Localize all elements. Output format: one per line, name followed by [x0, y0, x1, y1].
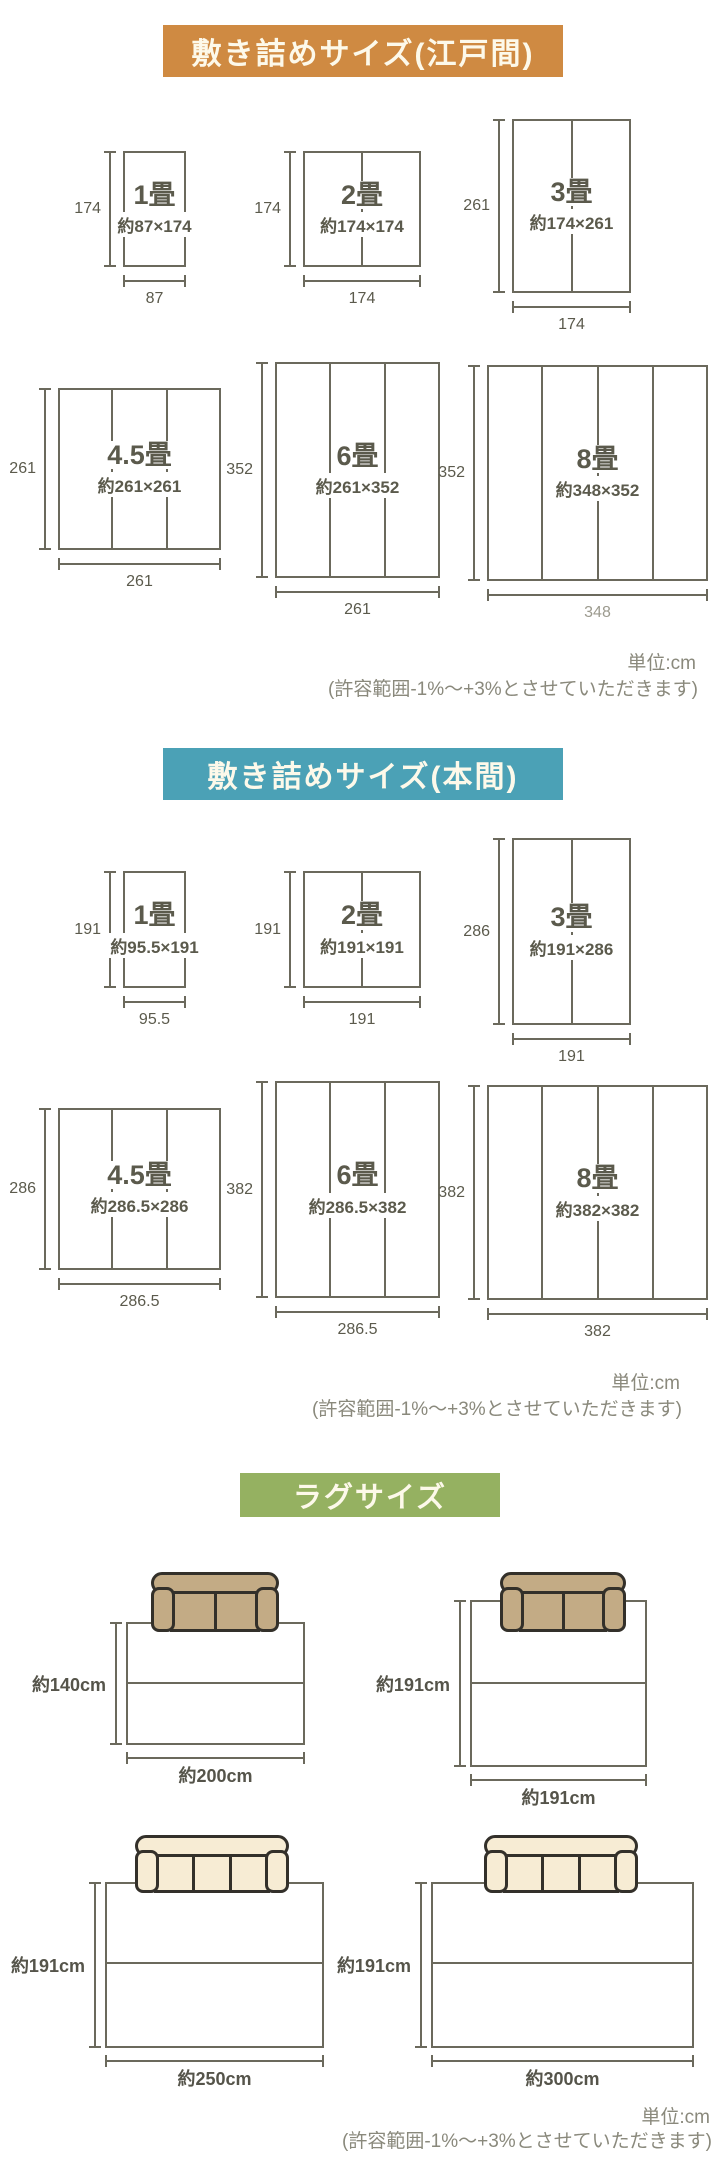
width-dim-label: 174: [349, 290, 376, 308]
height-dim-line: [468, 365, 480, 581]
mat-name: 4.5畳: [102, 1161, 177, 1189]
mat-edoma-4-5jo: 4.5畳 約261×261 261 261: [58, 388, 221, 550]
width-dim-label: 87: [146, 290, 164, 308]
rug-middle-line: [431, 1962, 694, 1964]
width-dim-line: [58, 558, 221, 570]
mat-edoma-8jo: 8畳 約348×352 352 348: [487, 365, 708, 581]
height-dim-label: 約140cm: [32, 1671, 106, 1697]
sofa-seats: [170, 1591, 260, 1632]
mat-honma-4-5jo: 4.5畳 約286.5×286 286 286.5: [58, 1108, 221, 1270]
sofa-icon: [500, 1572, 626, 1632]
mat-edoma-3jo: 3畳 約174×261 261 174: [512, 119, 631, 293]
sofa-icon: [151, 1572, 279, 1632]
height-dim-line: [104, 871, 116, 988]
sofa-armrest-right: [602, 1587, 626, 1632]
height-dim-label: 約191cm: [11, 1952, 85, 1978]
width-dim-label: 約191cm: [521, 1784, 595, 1810]
mat-name: 8畳: [571, 1164, 623, 1192]
width-dim-line: [487, 589, 708, 601]
mat-size: 約95.5×191: [107, 933, 201, 958]
mat-size: 約174×174: [317, 212, 407, 237]
mat-size: 約191×191: [317, 933, 407, 958]
rug-outline: [431, 1882, 694, 2048]
mat-size: 約191×286: [527, 935, 617, 960]
tolerance-note-edoma: (許容範囲-1%〜+3%とさせていただきます): [328, 674, 698, 701]
mat-edoma-1jo: 1畳 約87×174 174 87: [123, 151, 186, 267]
sofa-seats: [503, 1854, 619, 1893]
width-dim-line: [303, 996, 421, 1008]
height-dim-label: 174: [254, 200, 281, 218]
sofa-armrest-right: [614, 1850, 638, 1893]
mat-size: 約87×174: [114, 212, 194, 237]
mat-name: 4.5畳: [102, 441, 177, 469]
width-dim-line: [487, 1308, 708, 1320]
mat-edoma-2jo: 2畳 約174×174 174 174: [303, 151, 421, 267]
sofa-armrest-right: [255, 1587, 279, 1632]
width-dim-line: [123, 275, 186, 287]
rug-outline: [105, 1882, 324, 2048]
section-header-rug: ラグサイズ: [240, 1473, 500, 1517]
mat-honma-3jo: 3畳 約191×286 286 191: [512, 838, 631, 1025]
sofa-seats: [154, 1854, 270, 1893]
height-dim-label: 382: [438, 1184, 465, 1202]
height-dim-line: [89, 1882, 101, 2048]
mat-name: 3畳: [545, 903, 597, 931]
mat-edoma-6jo: 6畳 約261×352 352 261: [275, 362, 440, 578]
mat-name: 6畳: [331, 1161, 383, 1189]
width-dim-label: 348: [584, 604, 611, 622]
height-dim-label: 261: [463, 197, 490, 215]
width-dim-label: 286.5: [337, 1321, 377, 1339]
height-dim-line: [284, 151, 296, 267]
width-dim-line: [275, 586, 440, 598]
height-dim-label: 382: [226, 1181, 253, 1199]
height-dim-line: [104, 151, 116, 267]
mat-size: 約348×352: [553, 476, 643, 501]
mat-name: 8畳: [571, 445, 623, 473]
sofa-icon: [135, 1835, 289, 1893]
width-dim-label: 286.5: [119, 1293, 159, 1311]
width-dim-line: [512, 1033, 631, 1045]
mat-honma-1jo: 1畳 約95.5×191 191 95.5: [123, 871, 186, 988]
width-dim-line: [303, 275, 421, 287]
rug-191x191: 約191cm 約191cm: [470, 1600, 647, 1767]
width-dim-label: 191: [349, 1011, 376, 1029]
width-dim-label: 約300cm: [525, 2065, 599, 2091]
width-dim-label: 261: [344, 601, 371, 619]
mat-honma-2jo: 2畳 約191×191 191 191: [303, 871, 421, 988]
width-dim-line: [275, 1306, 440, 1318]
mat-size: 約286.5×286: [88, 1192, 192, 1217]
height-dim-line: [493, 838, 505, 1025]
mat-name: 3畳: [545, 178, 597, 206]
tolerance-note-honma: (許容範囲-1%〜+3%とさせていただきます): [312, 1394, 682, 1421]
height-dim-label: 286: [463, 923, 490, 941]
height-dim-label: 191: [254, 921, 281, 939]
mat-size: 約261×261: [95, 472, 185, 497]
sofa-armrest-left: [135, 1850, 159, 1893]
sofa-armrest-left: [151, 1587, 175, 1632]
width-dim-label: 174: [558, 316, 585, 334]
unit-label-honma: 単位:cm: [611, 1368, 680, 1395]
height-dim-label: 352: [438, 464, 465, 482]
width-dim-label: 191: [558, 1048, 585, 1066]
height-dim-line: [454, 1600, 466, 1767]
mat-name: 2畳: [336, 901, 388, 929]
width-dim-line: [512, 301, 631, 313]
height-dim-line: [256, 1081, 268, 1298]
height-dim-label: 約191cm: [337, 1952, 411, 1978]
width-dim-line: [58, 1278, 221, 1290]
height-dim-line: [256, 362, 268, 578]
mat-name: 1畳: [128, 181, 180, 209]
height-dim-line: [39, 388, 51, 550]
mat-honma-8jo: 8畳 約382×382 382 382: [487, 1085, 708, 1300]
sofa-armrest-left: [484, 1850, 508, 1893]
height-dim-label: 約191cm: [376, 1671, 450, 1697]
height-dim-line: [284, 871, 296, 988]
height-dim-label: 191: [74, 921, 101, 939]
width-dim-label: 約250cm: [177, 2065, 251, 2091]
section-header-edoma: 敷き詰めサイズ(江戸間): [163, 25, 563, 77]
sofa-icon: [484, 1835, 638, 1893]
size-infographic: 敷き詰めサイズ(江戸間) 1畳 約87×174 174 87 2畳 約174×1…: [0, 0, 720, 2160]
sofa-armrest-right: [265, 1850, 289, 1893]
height-dim-line: [493, 119, 505, 293]
rug-middle-line: [470, 1682, 647, 1684]
mat-honma-6jo: 6畳 約286.5×382 382 286.5: [275, 1081, 440, 1298]
rug-191x250: 約191cm 約250cm: [105, 1882, 324, 2048]
width-dim-label: 261: [126, 573, 153, 591]
height-dim-line: [415, 1882, 427, 2048]
rug-middle-line: [126, 1682, 305, 1684]
width-dim-label: 約200cm: [178, 1762, 252, 1788]
mat-name: 2畳: [336, 181, 388, 209]
rug-middle-line: [105, 1962, 324, 1964]
mat-name: 1畳: [128, 901, 180, 929]
height-dim-label: 286: [9, 1180, 36, 1198]
unit-label-rug: 単位:cm: [641, 2102, 710, 2129]
width-dim-line: [123, 996, 186, 1008]
height-dim-label: 174: [74, 200, 101, 218]
height-dim-label: 261: [9, 460, 36, 478]
sofa-armrest-left: [500, 1587, 524, 1632]
height-dim-line: [110, 1622, 122, 1745]
width-dim-label: 95.5: [139, 1011, 170, 1029]
rug-191x300: 約191cm 約300cm: [431, 1882, 694, 2048]
mat-size: 約174×261: [527, 209, 617, 234]
height-dim-label: 352: [226, 461, 253, 479]
mat-size: 約261×352: [313, 473, 403, 498]
width-dim-label: 382: [584, 1323, 611, 1341]
mat-size: 約286.5×382: [306, 1193, 410, 1218]
mat-name: 6畳: [331, 442, 383, 470]
height-dim-line: [39, 1108, 51, 1270]
sofa-seats: [519, 1591, 607, 1632]
height-dim-line: [468, 1085, 480, 1300]
rug-140x200: 約140cm 約200cm: [126, 1622, 305, 1745]
section-header-honma: 敷き詰めサイズ(本間): [163, 748, 563, 800]
unit-label-edoma: 単位:cm: [627, 648, 696, 675]
mat-size: 約382×382: [553, 1196, 643, 1221]
tolerance-note-rug: (許容範囲-1%〜+3%とさせていただきます): [342, 2126, 712, 2153]
